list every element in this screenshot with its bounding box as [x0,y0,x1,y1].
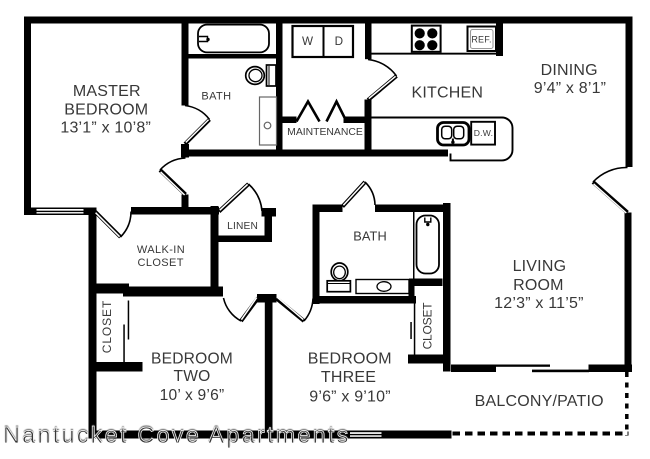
svg-text:WALK-IN: WALK-IN [137,244,185,256]
svg-text:BEDROOM: BEDROOM [64,102,148,119]
svg-text:TWO: TWO [174,368,211,385]
svg-text:BATH: BATH [201,91,231,103]
svg-text:D.W.: D.W. [474,128,493,138]
svg-text:13’1” x 10’8”: 13’1” x 10’8” [60,120,151,137]
svg-text:CLOSET: CLOSET [100,300,114,353]
svg-text:W: W [302,35,313,48]
svg-text:9’4” x 8’1”: 9’4” x 8’1” [534,80,606,97]
svg-text:KITCHEN: KITCHEN [411,84,483,101]
svg-text:BEDROOM: BEDROOM [308,351,392,368]
svg-text:MAINTENANCE: MAINTENANCE [287,127,363,138]
svg-text:9’6” x 9’10”: 9’6” x 9’10” [309,389,391,406]
svg-text:Nantucket Cove Apartments: Nantucket Cove Apartments [3,422,351,448]
svg-text:BEDROOM: BEDROOM [151,351,233,368]
svg-text:DINING: DINING [541,62,598,79]
svg-text:10’ x 9’6”: 10’ x 9’6” [160,387,225,404]
svg-text:LIVING: LIVING [513,258,567,275]
svg-text:BALCONY/PATIO: BALCONY/PATIO [475,393,604,410]
svg-text:ROOM: ROOM [513,277,564,294]
svg-text:BATH: BATH [353,229,387,244]
svg-text:12’3” x 11’5”: 12’3” x 11’5” [494,295,583,312]
svg-text:LINEN: LINEN [227,221,258,232]
svg-text:MASTER: MASTER [73,83,141,100]
svg-text:CLOSET: CLOSET [137,257,183,269]
svg-text:REF.: REF. [471,35,491,45]
svg-text:CLOSET: CLOSET [421,302,435,350]
svg-text:THREE: THREE [321,369,376,386]
svg-text:D: D [335,35,343,48]
